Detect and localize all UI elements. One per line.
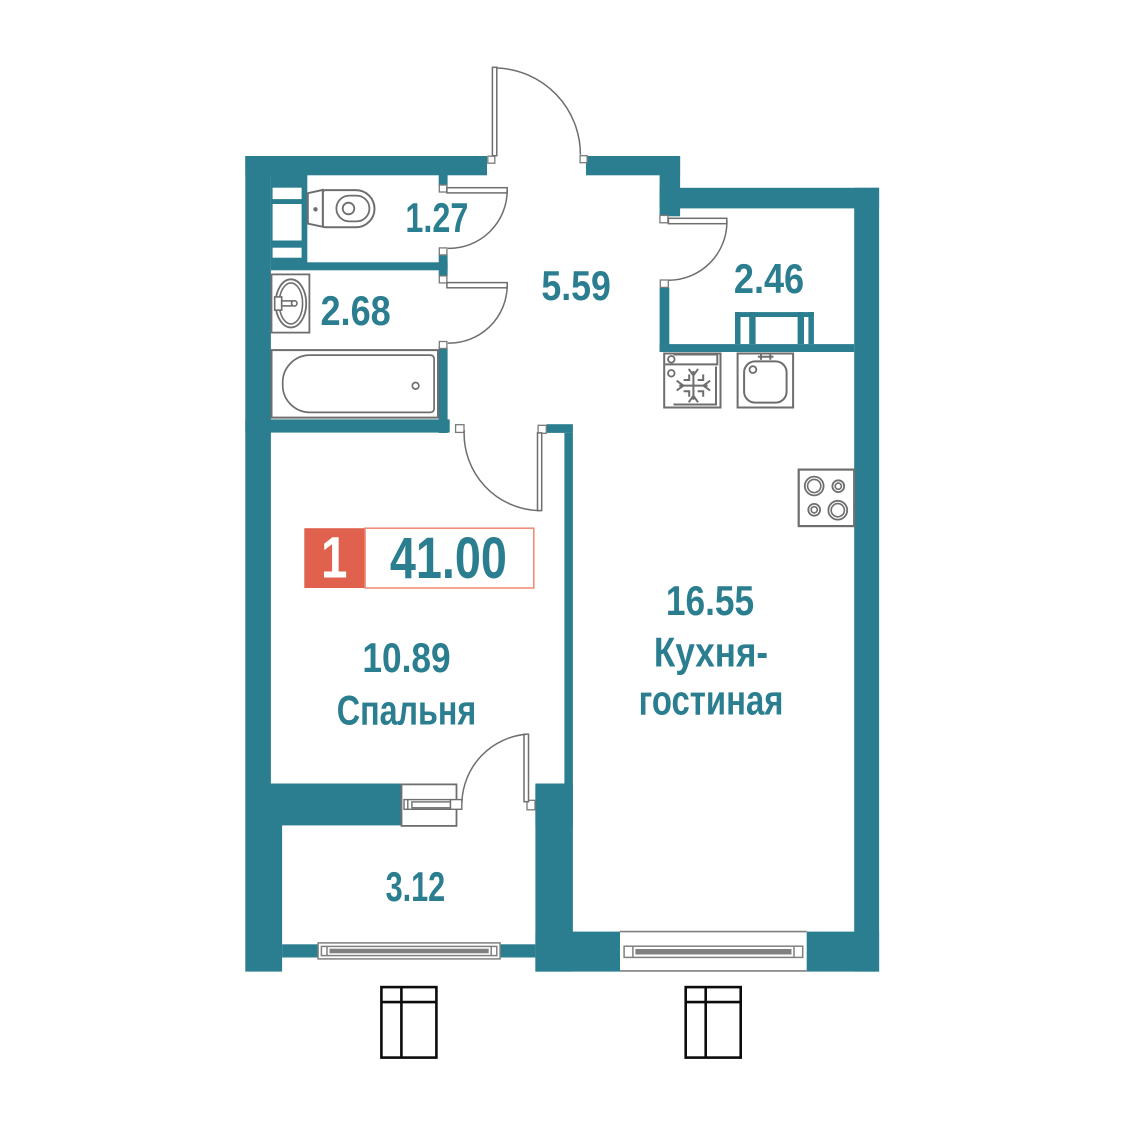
svg-text:2.46: 2.46 (734, 257, 804, 303)
svg-text:гостиная: гостиная (639, 677, 784, 724)
svg-text:3.12: 3.12 (386, 863, 446, 910)
svg-text:16.55: 16.55 (666, 578, 754, 625)
svg-text:1.27: 1.27 (405, 194, 468, 241)
svg-text:1: 1 (321, 526, 347, 591)
svg-text:Кухня-: Кухня- (654, 629, 768, 676)
svg-text:2.68: 2.68 (320, 289, 390, 335)
svg-text:41.00: 41.00 (390, 526, 507, 591)
svg-text:Спальня: Спальня (337, 686, 476, 733)
svg-text:10.89: 10.89 (362, 635, 450, 682)
svg-text:5.59: 5.59 (541, 263, 610, 309)
